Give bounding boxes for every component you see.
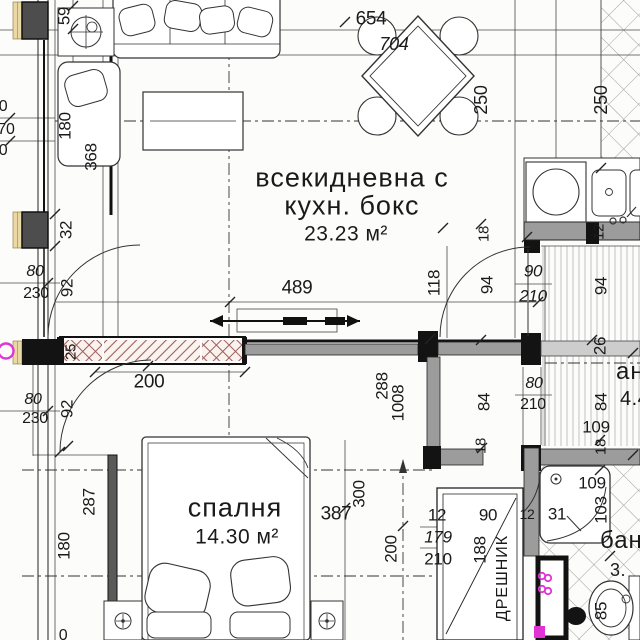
door-size-label: 90 <box>524 263 542 280</box>
dimension-label: 103 <box>593 496 610 523</box>
door-size-label: 179 <box>424 529 451 546</box>
dimension-label: 80 <box>24 392 41 408</box>
dimension-label: 59 <box>56 7 73 25</box>
dimension-label: 94 <box>479 276 496 294</box>
dimension-label: 12 <box>428 507 446 524</box>
dimension-label: 654 <box>356 10 387 29</box>
dimension-label: 188 <box>472 536 489 563</box>
dimension-label: 18 <box>474 438 489 454</box>
labels-layer: всекидневна скухн. бокс23.23 м²спалня14.… <box>0 0 640 640</box>
floor-plan: всекидневна скухн. бокс23.23 м²спалня14.… <box>0 0 640 640</box>
dimension-label: 18 <box>594 439 609 455</box>
dimension-label: 92 <box>59 400 76 418</box>
room-area-label: 3. <box>610 561 626 579</box>
dimension-label: 250 <box>592 85 610 114</box>
room-area-label: 14.30 м² <box>195 527 279 548</box>
dimension-label: 704 <box>379 35 408 53</box>
dimension-label: 287 <box>81 488 98 515</box>
dimension-label: 90 <box>479 507 497 524</box>
dimension-label: 70 <box>0 122 15 138</box>
dimension-label: 180 <box>56 532 73 559</box>
dimension-label: 230 <box>23 286 49 302</box>
room-area-label: 23.23 м² <box>304 224 388 245</box>
dimension-label: 18 <box>477 226 492 242</box>
dimension-label: 92 <box>59 279 76 297</box>
dimension-label: 118 <box>426 270 443 296</box>
room-name-label: ДРЕШНИК <box>495 535 511 621</box>
dimension-label: 84 <box>476 393 493 411</box>
dimension-label: 12 <box>592 224 607 240</box>
dimension-label: 26 <box>592 337 609 355</box>
dimension-label: 368 <box>83 143 100 170</box>
door-size-label: 80 <box>525 376 542 392</box>
room-name-label: бан <box>600 529 640 553</box>
dimension-label: 94 <box>593 277 610 295</box>
dimension-label: 1008 <box>390 385 407 422</box>
dimension-label: 25 <box>64 344 79 360</box>
dimension-label: 85 <box>593 602 610 620</box>
dimension-label: 84 <box>593 393 610 411</box>
door-size-label: 210 <box>519 288 546 305</box>
room-area-label: 4.4 <box>620 389 640 409</box>
dimension-label: 0 <box>59 628 68 640</box>
dimension-label: 300 <box>351 480 368 507</box>
dimension-label: 489 <box>282 279 313 298</box>
dimension-label: 250 <box>472 85 490 114</box>
dimension-label: 200 <box>383 535 400 562</box>
room-name-label: спалня <box>188 495 282 522</box>
dimension-label: 109 <box>578 475 605 492</box>
dimension-label: 12 <box>520 507 535 521</box>
dimension-label: 32 <box>58 221 75 239</box>
room-name-label: ан <box>616 360 640 384</box>
dimension-label: 180 <box>57 112 74 139</box>
dimension-label: 387 <box>321 505 352 524</box>
dimension-label: 109 <box>582 419 609 436</box>
dimension-label: 0 <box>0 99 7 115</box>
dimension-label: 31 <box>548 506 566 523</box>
dimension-label: 230 <box>22 411 48 427</box>
door-size-label: 210 <box>520 397 546 413</box>
room-name-label: кухн. бокс <box>284 193 419 220</box>
dimension-label: 200 <box>134 373 165 392</box>
dimension-label: 0 <box>0 143 7 159</box>
dimension-label: 80 <box>26 264 43 280</box>
door-size-label: 210 <box>424 551 451 568</box>
room-name-label: всекидневна с <box>255 165 448 192</box>
